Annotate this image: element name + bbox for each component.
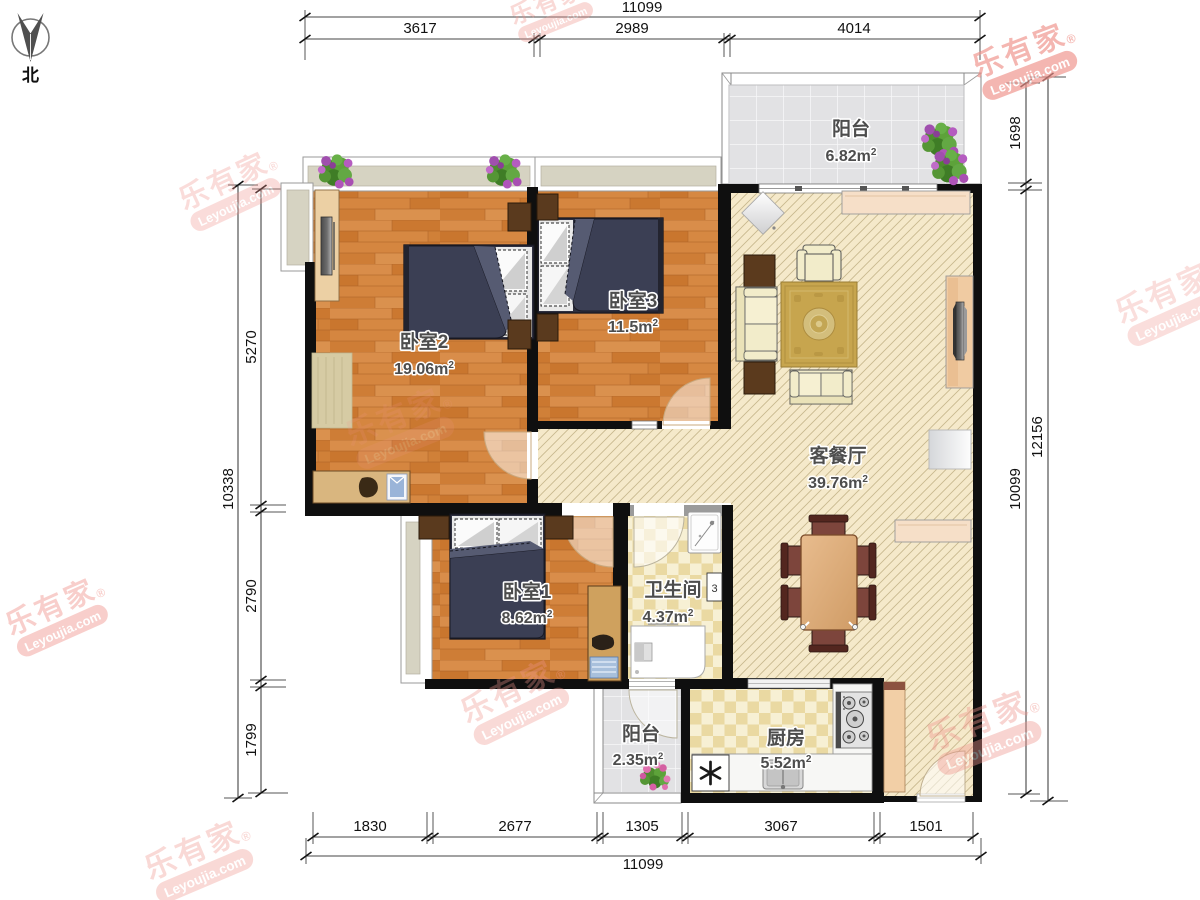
svg-text:10338: 10338 [220,468,237,510]
svg-text:12156: 12156 [1029,416,1046,458]
svg-text:阳台: 阳台 [622,722,660,745]
svg-text:3617: 3617 [403,20,436,37]
svg-text:1830: 1830 [353,818,386,835]
svg-text:2677: 2677 [498,818,531,835]
svg-text:厨房: 厨房 [767,726,805,749]
svg-text:1799: 1799 [243,723,260,756]
svg-text:5270: 5270 [243,330,260,363]
svg-text:4014: 4014 [837,20,870,37]
svg-text:5.52m2: 5.52m2 [761,754,812,772]
svg-text:3: 3 [711,583,717,595]
svg-text:10099: 10099 [1007,468,1024,510]
svg-text:1698: 1698 [1007,116,1024,149]
svg-text:39.76m2: 39.76m2 [808,474,868,492]
svg-text:阳台: 阳台 [832,117,870,140]
svg-text:19.06m2: 19.06m2 [394,360,454,378]
svg-text:11.5m2: 11.5m2 [608,318,658,336]
svg-text:4.37m2: 4.37m2 [643,608,694,626]
svg-text:8.62m2: 8.62m2 [502,609,553,627]
svg-text:2.35m2: 2.35m2 [613,751,664,769]
svg-text:1501: 1501 [909,818,942,835]
svg-text:北: 北 [22,66,39,85]
svg-text:2790: 2790 [243,579,260,612]
svg-text:卧室1: 卧室1 [503,580,552,603]
svg-text:卫生间: 卫生间 [644,578,701,601]
svg-text:客餐厅: 客餐厅 [809,444,866,467]
svg-text:6.82m2: 6.82m2 [826,147,877,165]
svg-text:卧室2: 卧室2 [400,330,449,353]
svg-text:11099: 11099 [623,856,664,873]
svg-text:2989: 2989 [615,20,648,37]
svg-text:3067: 3067 [764,818,797,835]
svg-text:1305: 1305 [625,818,658,835]
svg-text:11099: 11099 [622,0,663,16]
svg-text:卧室3: 卧室3 [609,289,658,312]
